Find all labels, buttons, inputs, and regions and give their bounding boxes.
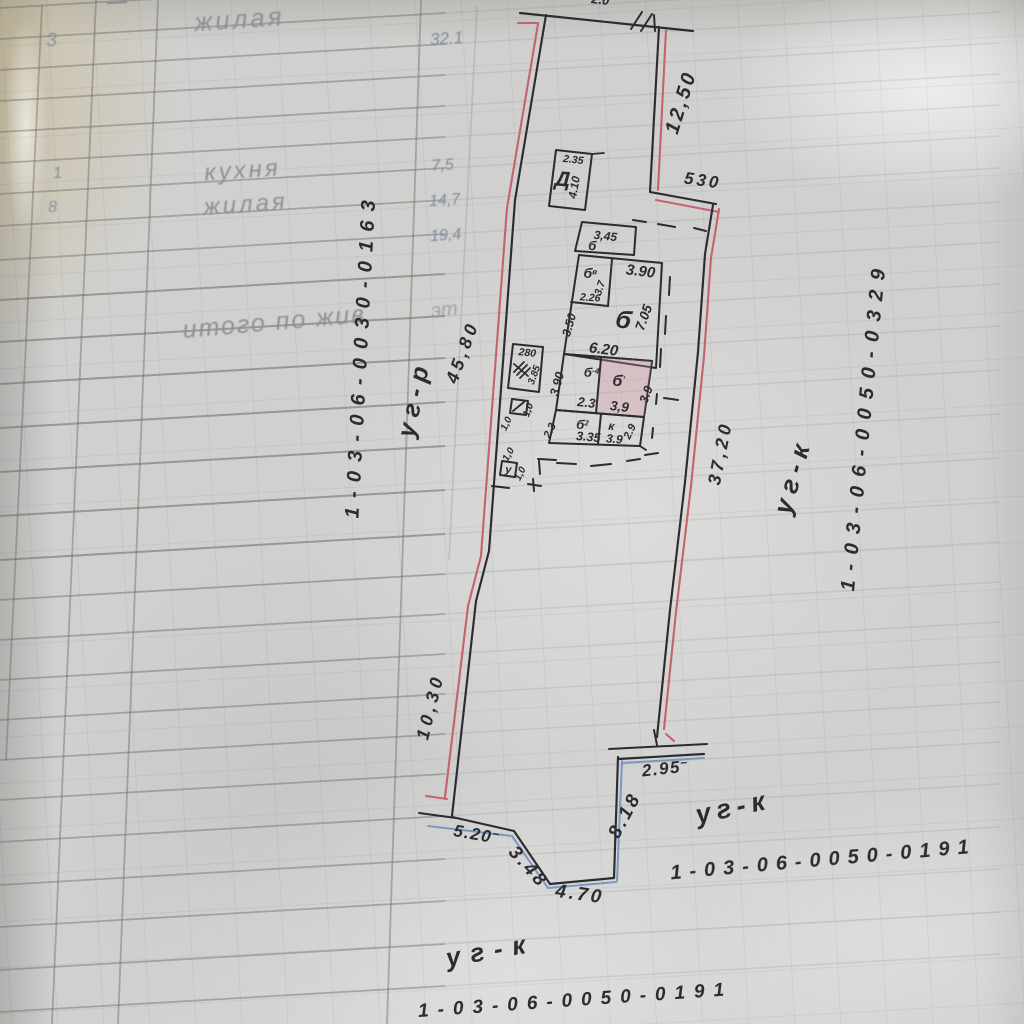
svg-text:1,0: 1,0 — [521, 401, 536, 418]
svg-text:1-03-06-0030-0163: 1-03-06-0030-0163 — [341, 191, 380, 519]
svg-text:2.26: 2.26 — [579, 291, 601, 304]
svg-text:1,0: 1,0 — [501, 446, 518, 464]
svg-text:3,9: 3,9 — [609, 398, 630, 415]
svg-text:1-03-06-0050-0191: 1-03-06-0050-0191 — [669, 836, 977, 885]
svg-text:6.20: 6.20 — [588, 339, 620, 360]
svg-text:8.18: 8.18 — [604, 789, 646, 842]
svg-text:3.85: 3.85 — [526, 364, 543, 386]
svg-text:эт: эт — [430, 298, 458, 322]
svg-text:12,50: 12,50 — [661, 68, 701, 137]
svg-text:8: 8 — [48, 199, 58, 217]
svg-text:3.48: 3.48 — [504, 842, 552, 892]
svg-text:37,20: 37,20 — [704, 419, 736, 487]
svg-text:2.3: 2.3 — [541, 421, 559, 441]
svg-text:1,0: 1,0 — [499, 415, 515, 433]
svg-text:5.20–: 5.20– — [452, 819, 502, 848]
svg-text:б-4: б-4 — [583, 364, 600, 381]
svg-text:7,5: 7,5 — [431, 156, 454, 175]
svg-text:4.70: 4.70 — [553, 881, 605, 909]
svg-text:жилая: жилая — [192, 1, 285, 37]
svg-text:б2: б2 — [576, 416, 591, 432]
svg-text:4.10: 4.10 — [567, 175, 583, 201]
svg-text:3.50: 3.50 — [559, 311, 579, 338]
svg-text:б: б — [613, 305, 635, 336]
svg-text:жилая: жилая — [201, 188, 288, 221]
svg-text:3: 3 — [46, 30, 58, 52]
svg-text:бв: бв — [583, 265, 598, 282]
svg-text:14,7: 14,7 — [429, 191, 462, 210]
svg-text:3.9: 3.9 — [637, 384, 656, 405]
svg-text:уг-к: уг-к — [767, 434, 818, 519]
svg-text:1: 1 — [53, 165, 63, 183]
svg-text:530: 530 — [683, 169, 723, 193]
svg-text:итого по жив: итого по жив — [181, 300, 367, 344]
svg-text:1-03-06-0050-0329: 1-03-06-0050-0329 — [837, 259, 891, 592]
svg-text:45,80: 45,80 — [441, 318, 482, 387]
svg-text:2.95–: 2.95– — [640, 755, 690, 781]
svg-text:32.1: 32.1 — [429, 28, 463, 49]
svg-text:кухня: кухня — [203, 154, 281, 186]
svg-text:к: к — [608, 419, 616, 434]
svg-text:2.35: 2.35 — [562, 153, 585, 167]
svg-text:3,45: 3,45 — [593, 228, 618, 244]
svg-text:уг-р: уг-р — [392, 357, 436, 442]
svg-text:Д: Д — [552, 167, 571, 191]
svg-text:19,4: 19,4 — [430, 226, 462, 245]
svg-text:3.35: 3.35 — [576, 429, 603, 445]
svg-text:3.9: 3.9 — [605, 431, 623, 446]
svg-text:10,30: 10,30 — [412, 671, 448, 741]
svg-text:б': б' — [612, 372, 627, 390]
svg-text:1-03-06-0050-0191: 1-03-06-0050-0191 — [417, 979, 733, 1022]
svg-text:2.0: 2.0 — [590, 0, 611, 8]
svg-text:уг-к: уг-к — [441, 928, 537, 974]
svg-text:2.3: 2.3 — [576, 394, 597, 411]
svg-text:3.7: 3.7 — [592, 278, 608, 297]
svg-text:7.05: 7.05 — [632, 302, 655, 332]
svg-text:2.9: 2.9 — [621, 421, 639, 442]
svg-text:3.90: 3.90 — [547, 370, 567, 397]
svg-text:у: у — [504, 464, 513, 477]
svg-text:1,0: 1,0 — [513, 465, 529, 483]
svg-text:280: 280 — [517, 346, 537, 360]
svg-text:б: б — [588, 238, 598, 254]
svg-text:уг-к: уг-к — [691, 785, 774, 831]
svg-text:3.90: 3.90 — [625, 261, 657, 282]
